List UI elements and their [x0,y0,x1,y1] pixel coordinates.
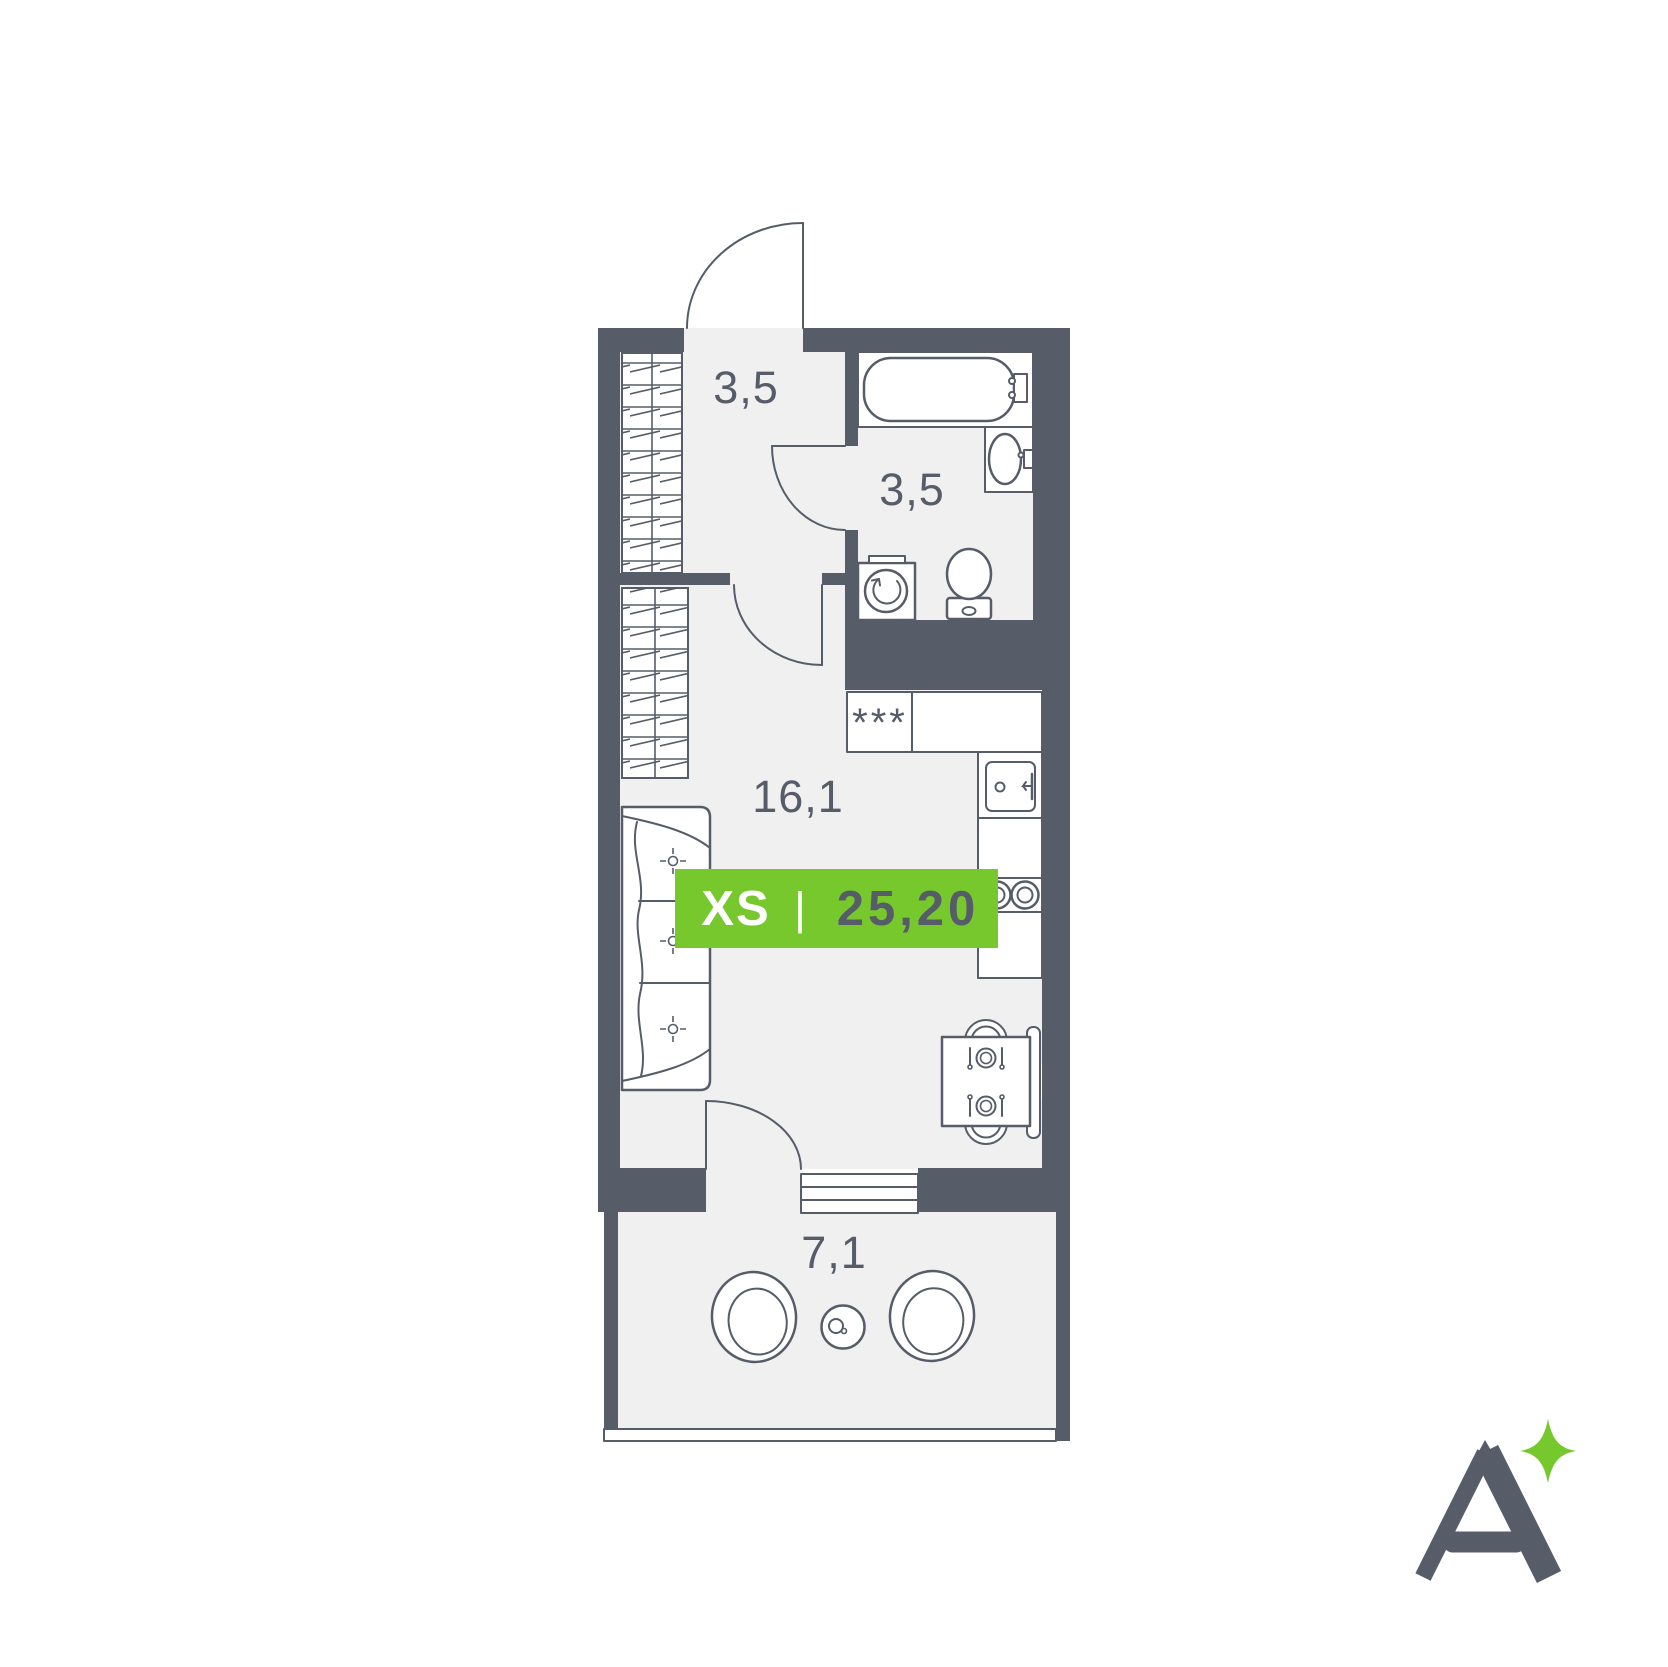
bathroom-sink [985,427,1033,492]
floor-balcony-door-gap [706,1168,801,1212]
balcony-glazing-window [604,1429,1056,1441]
logo-letter-a-icon [1423,1440,1549,1577]
wall-right [1042,328,1070,1212]
balcony-table [822,1306,865,1349]
dining-set [942,1020,1040,1144]
badge-total-area: 25,20 [837,882,980,936]
entrance-door [687,223,803,328]
freezer-stars-label: *** [852,701,908,745]
bathroom-area-label: 3,5 [879,464,945,515]
wall-top-right [803,328,1070,352]
kitchen-counter-top [912,692,1042,752]
hallway-area-label: 3,5 [713,362,779,413]
living-wardrobe-lower [622,588,688,778]
wall-bottom-left [598,1168,706,1212]
dining-table [942,1037,1030,1126]
wall-bathroom-left-lower [845,530,858,620]
wall-hall-partition [620,573,730,585]
kitchen-sink [986,762,1035,811]
wall-hall-partition-stub [822,573,845,585]
wall-duct-shaft [845,620,1042,690]
wall-balcony-left [604,1212,618,1429]
washing-machine [858,556,915,620]
badge-size-label: XS [701,882,770,936]
balcony-area-label: 7,1 [801,1227,867,1278]
floorplan-drawing: *** [0,0,1668,1667]
floorplan-page: *** [0,0,1668,1667]
bathtub [858,352,1033,427]
sofa [622,807,710,1090]
apartment-size-badge: XS | 25,20 [675,869,998,948]
living-area-label: 16,1 [752,771,844,822]
badge-divider: | [794,883,806,934]
floor-entrance-gap [684,328,803,352]
balcony-steps [801,1174,918,1213]
hallway-wardrobe-upper [622,353,682,573]
logo-sparkle-icon [1520,1419,1576,1483]
wall-bathroom-left-upper [845,352,858,446]
developer-logo: A [1423,1419,1576,1577]
wall-bathroom-right-slab [1033,352,1042,620]
wall-bottom-right [918,1168,1070,1212]
toilet [947,549,991,619]
wall-left [598,328,620,1212]
wall-balcony-right [1056,1212,1070,1441]
